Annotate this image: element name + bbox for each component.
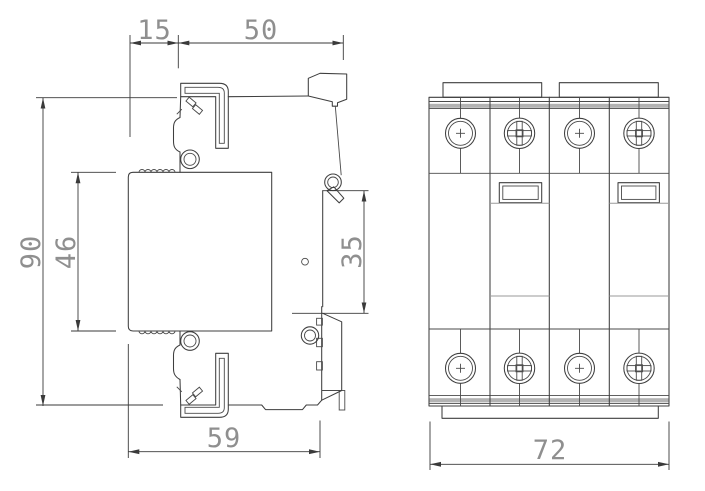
latch-lever	[308, 73, 346, 106]
terminal-screw-plain	[565, 353, 595, 383]
front-view	[429, 83, 669, 419]
terminal-screw-plain	[565, 118, 595, 148]
dim-15-label: 15	[137, 15, 172, 46]
label-window	[490, 183, 549, 296]
clamp-teeth-top	[186, 97, 203, 114]
main-body	[128, 170, 271, 334]
terminal-screw-phillips	[504, 118, 534, 148]
dim-35: 35	[292, 191, 369, 314]
dim-72-label: 72	[533, 435, 568, 466]
dim-90-label: 90	[16, 235, 47, 270]
drawing-canvas: 15 50 90 46 35 59	[0, 0, 705, 491]
screw-top-left	[181, 150, 200, 169]
wire-clamp-top-inner	[185, 87, 224, 143]
terminal-screw-phillips	[624, 353, 654, 383]
dim-46: 46	[51, 172, 116, 331]
clamp-teeth-bottom	[186, 387, 203, 404]
spring-bump-bottom	[174, 345, 181, 380]
terminal-screw-plain	[446, 353, 476, 383]
dim-90: 90	[16, 98, 177, 406]
top-terminal-clamp	[174, 83, 229, 172]
label-window	[609, 183, 669, 296]
top-mounting-tabs	[443, 83, 658, 98]
screw-top-right	[325, 174, 342, 191]
dim-46-label: 46	[51, 235, 82, 270]
terminal-screw-plain	[446, 118, 476, 148]
release-latch	[228, 73, 346, 203]
dim-50: 50	[178, 15, 343, 60]
spring-bump-top	[174, 118, 181, 153]
housing-bottom-edge	[228, 391, 341, 410]
terminal-screw-phillips	[624, 118, 654, 148]
technical-dimension-drawing: 15 50 90 46 35 59	[0, 0, 705, 491]
rail-lip	[339, 391, 345, 411]
rail-section	[301, 191, 345, 410]
screw-bottom-right	[301, 327, 318, 344]
dim-50-label: 50	[244, 15, 279, 46]
screw-bottom-left	[181, 332, 200, 351]
latch-bracket	[327, 187, 344, 203]
side-view	[128, 73, 346, 417]
dim-15: 15	[130, 15, 178, 137]
dim-72: 72	[430, 422, 669, 471]
rail-flange	[323, 313, 342, 390]
dim-59-label: 59	[207, 423, 242, 454]
terminal-screw-phillips	[504, 353, 534, 383]
side-hole	[302, 258, 309, 265]
dim-35-label: 35	[337, 234, 368, 269]
bottom-mounting-tab	[442, 406, 658, 418]
